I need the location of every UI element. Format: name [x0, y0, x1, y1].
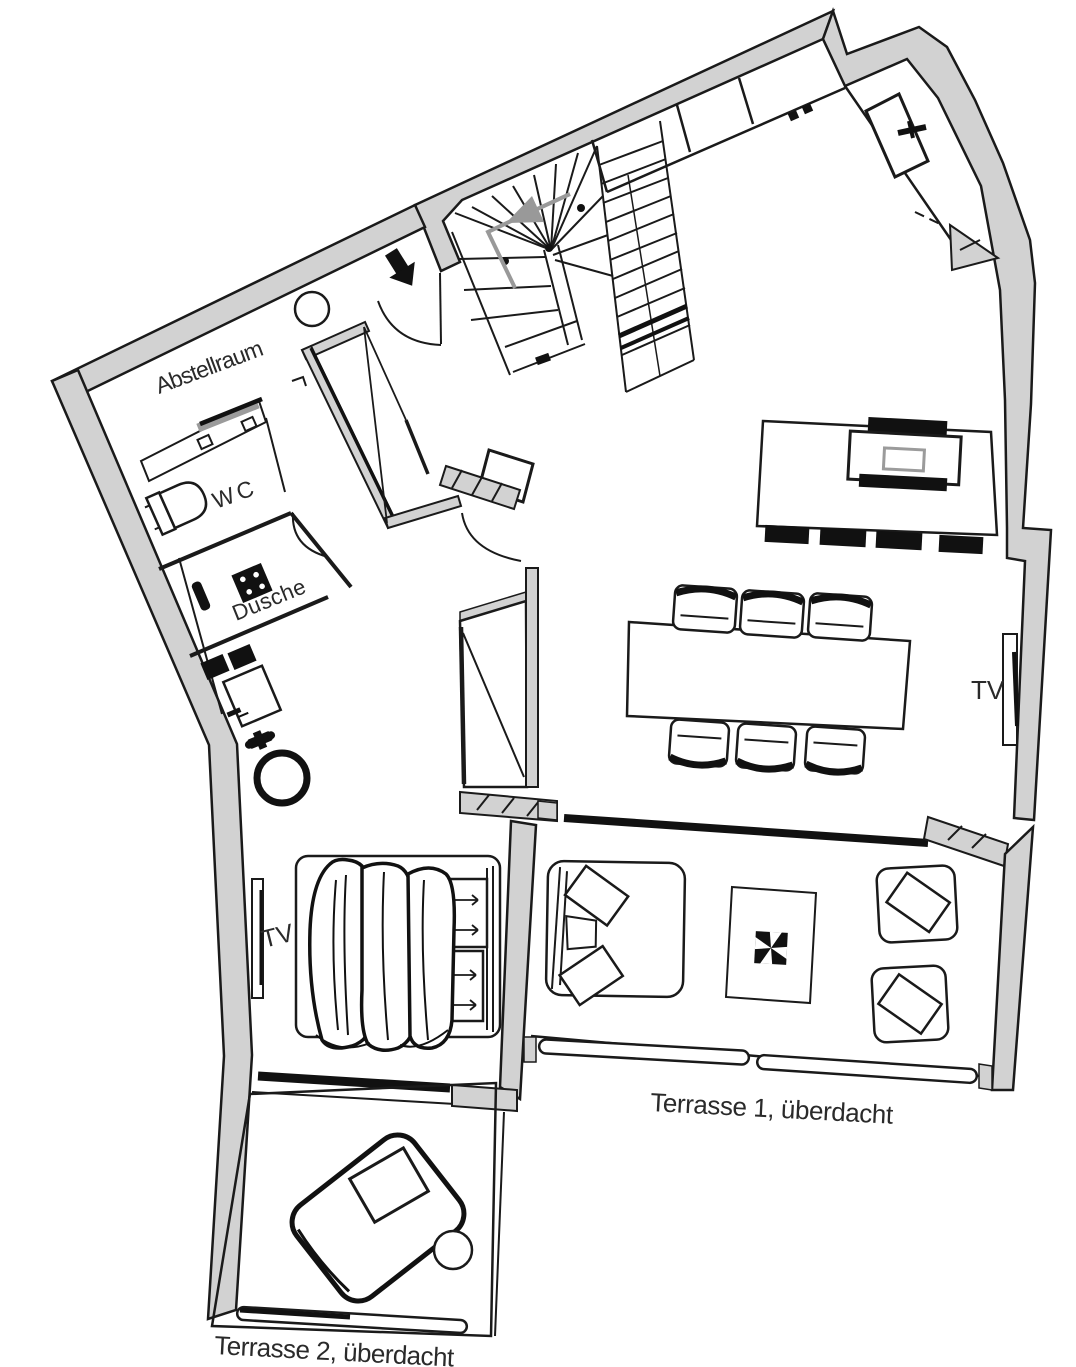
svg-text:TV: TV: [971, 675, 1005, 705]
